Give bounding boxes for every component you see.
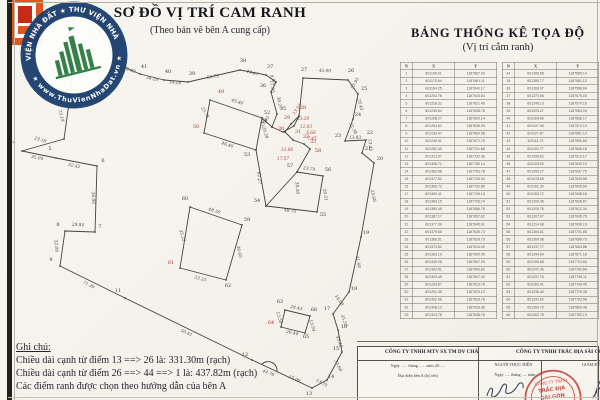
coord-row: 7601258.271187620.14: [400, 115, 497, 123]
coord-row: 65601260.701187800.48: [502, 304, 599, 312]
coordinate-table-left: NXY1601145.611187667.092601170.641187661…: [400, 62, 497, 336]
coord-row: 49601161.301187605.84: [502, 183, 599, 191]
svg-text:36: 36: [260, 83, 266, 89]
svg-text:50: 50: [193, 124, 199, 130]
svg-text:41: 41: [141, 64, 147, 70]
svg-text:38.38: 38.38: [293, 182, 299, 195]
svg-text:5: 5: [48, 146, 51, 152]
coordinate-table: NXY1601145.611187667.092601170.641187661…: [400, 62, 497, 319]
svg-text:7.45: 7.45: [307, 137, 317, 142]
page-title: SƠ ĐỒ VỊ TRÍ CAM RANH: [95, 5, 325, 22]
svg-text:26: 26: [348, 68, 354, 74]
signature-top-rule: [357, 341, 598, 342]
svg-text:38: 38: [240, 58, 246, 64]
svg-text:49: 49: [218, 89, 224, 95]
coord-row: 64601232.621187793.56: [502, 296, 599, 304]
coord-row: 23601366.511187628.75: [400, 236, 497, 244]
svg-text:5.66: 5.66: [306, 131, 316, 136]
coord-row: 40601169.891187568.17: [502, 115, 599, 123]
coord-row: 29601293.871187613.76: [400, 281, 497, 289]
svg-text:62: 62: [225, 283, 231, 289]
coord-row: 16601369.721187732.86: [400, 183, 497, 191]
coord-row: 36601268.971187588.84: [502, 85, 599, 93]
svg-text:23.78: 23.78: [199, 105, 210, 119]
coord-row: 63601236.441187776.38: [502, 289, 599, 297]
coord-row: 50601153.721187638.16: [502, 191, 599, 199]
notes-block: Ghi chú: Chiều dài cạnh từ điểm 13 ==> 2…: [16, 341, 326, 393]
svg-text:36.06: 36.06: [90, 192, 96, 205]
coord-row: 30601291.451187623.12: [400, 289, 497, 297]
coord-row: 46601103.091187630.13: [502, 160, 599, 168]
svg-text:14.29: 14.29: [169, 81, 182, 87]
coord-row: 60601147.361187700.84: [502, 266, 599, 274]
coord-row: 66601262.781187782.13: [502, 311, 599, 319]
coord-row: 57601237.771187663.88: [502, 243, 599, 251]
coord-row: 59601195.681187714.65: [502, 258, 599, 266]
coord-row: 26601349.281187597.29: [400, 258, 497, 266]
svg-text:56: 56: [325, 167, 331, 173]
scan-edge-right: [597, 0, 598, 400]
svg-text:17.57: 17.57: [277, 157, 290, 162]
coordinate-table-right: NXY34601306.581187585.1435601280.7711875…: [502, 62, 599, 336]
coord-table-title: BẢNG THỐNG KÊ TỌA ĐỘ: [398, 26, 598, 41]
svg-text:20: 20: [377, 156, 383, 162]
coord-row: 15601377.521187743.34: [400, 175, 497, 183]
svg-text:12.93: 12.93: [300, 125, 313, 130]
svg-text:27: 27: [301, 67, 307, 73]
svg-text:30.27: 30.27: [275, 96, 282, 109]
coord-row: 43601111.721187590.84: [502, 138, 599, 146]
coord-row: 13601346.711187760.14: [400, 160, 497, 168]
coord-row: 14601369.581187753.78: [400, 168, 497, 176]
svg-text:59: 59: [244, 217, 250, 223]
svg-text:53.73: 53.73: [206, 74, 219, 81]
svg-text:37: 37: [267, 64, 273, 70]
svg-text:29.31: 29.31: [321, 187, 328, 201]
svg-text:6: 6: [101, 158, 104, 164]
svg-text:65: 65: [303, 334, 309, 340]
scan-edge-bottom: [8, 397, 600, 398]
svg-text:36.65: 36.65: [235, 245, 243, 258]
svg-text:17: 17: [324, 306, 330, 312]
company-seal: CÔNG TY TNHH TRẮC ĐỊA SÀI GÒN: [506, 355, 600, 400]
coord-row: 55601264.811187701.85: [502, 228, 599, 236]
svg-text:44.47: 44.47: [245, 69, 259, 78]
party-a-company: CÔNG TY TNHH MTV SX TM DV CHÂU SÁO VIÊN: [385, 349, 451, 355]
coord-row: 17601363.411187726.13: [400, 191, 497, 199]
scan-edge-left-thin: [14, 0, 15, 400]
coord-row: 21601377.391187645.91: [400, 221, 497, 229]
svg-text:28.45: 28.45: [355, 97, 363, 111]
svg-text:54: 54: [254, 198, 260, 204]
svg-text:60: 60: [182, 196, 188, 202]
party-a-header: CÔNG TY TNHH MTV SX TM DV CHÂU SÁO VIÊN: [358, 347, 478, 361]
svg-text:14: 14: [328, 374, 334, 380]
svg-text:57: 57: [287, 163, 293, 169]
svg-text:45.40: 45.40: [230, 98, 244, 107]
svg-text:45.90: 45.90: [318, 69, 332, 74]
svg-text:63: 63: [277, 299, 283, 305]
party-a-body: Ngày ...... tháng ...... năm 20...... Đạ…: [358, 361, 478, 400]
svg-text:23: 23: [335, 133, 341, 139]
svg-text:53.95: 53.95: [350, 77, 361, 90]
svg-text:11.95: 11.95: [268, 80, 275, 93]
coord-row: 2601170.641187661.11: [400, 77, 497, 85]
svg-text:19: 19: [363, 230, 369, 236]
coord-row: 1601145.611187667.09: [400, 70, 497, 78]
coord-row: 56601269.981187668.73: [502, 236, 599, 244]
svg-text:13.58: 13.58: [274, 311, 283, 324]
svg-text:23.74: 23.74: [302, 166, 316, 173]
svg-text:52: 52: [264, 110, 270, 116]
coord-row: 39601203.271187563.04: [502, 108, 599, 116]
svg-text:64: 64: [268, 320, 274, 326]
svg-text:33.33: 33.33: [194, 276, 207, 284]
note-line-2: Chiều dài cạnh từ điểm 26 ==> 44 ==> 1 l…: [16, 367, 326, 380]
svg-text:30: 30: [278, 126, 284, 132]
svg-text:9: 9: [49, 257, 52, 263]
svg-text:61: 61: [168, 260, 174, 266]
svg-text:66: 66: [311, 307, 317, 313]
svg-text:23.68: 23.68: [369, 188, 377, 202]
svg-text:32.38: 32.38: [347, 122, 357, 135]
coord-table-subtitle: (Vị trí cắm ranh): [398, 42, 598, 53]
coord-row: 22601379.661187635.73: [400, 228, 497, 236]
coord-row: 24601373.821187616.00: [400, 243, 497, 251]
signature-block: CÔNG TY TNHH MTV SX TM DV CHÂU SÁO VIÊN …: [357, 346, 599, 400]
svg-text:39: 39: [189, 71, 195, 77]
page-subtitle: (Theo bản vẽ bên A cung cấp): [95, 25, 325, 36]
scan-edge-top: [8, 2, 600, 3]
coord-row: 47601093.271187637.75: [502, 168, 599, 176]
svg-text:12.86: 12.86: [281, 148, 294, 153]
coord-row: 5601218.321187621.46: [400, 100, 497, 108]
svg-text:24: 24: [355, 112, 361, 118]
notes-heading: Ghi chú:: [16, 341, 326, 354]
coord-row: 45601096.621187619.17: [502, 153, 599, 161]
coordinate-table: NXY34601306.581187585.1435601280.7711875…: [502, 62, 599, 319]
party-b-company: CÔNG TY TNHH TRẮC ĐỊA SÀI GÒN: [516, 349, 600, 355]
coord-row: 35601280.771187581.12: [502, 77, 599, 85]
coord-row: 18601369.151187706.74: [400, 198, 497, 206]
coord-row: 11601282.401187701.68: [400, 145, 497, 153]
svg-text:18: 18: [351, 286, 357, 292]
title-block: SƠ ĐỒ VỊ TRÍ CAM RANH (Theo bản vẽ bên A…: [95, 5, 325, 36]
svg-text:32.42: 32.42: [68, 163, 81, 170]
svg-text:34.29: 34.29: [146, 76, 159, 84]
svg-text:62.27: 62.27: [255, 172, 261, 185]
coord-row: 58601244.841187671.18: [502, 251, 599, 259]
svg-text:48.30: 48.30: [207, 207, 221, 216]
coord-row: 38601246.131187570.15: [502, 100, 599, 108]
coord-row: 62601182.411187749.45: [502, 281, 599, 289]
coord-row: 8601253.621187636.09: [400, 123, 497, 131]
coord-row: 10601246.911187671.79: [400, 138, 497, 146]
coord-row: 42601127.871187581.13: [502, 130, 599, 138]
svg-text:28.38: 28.38: [260, 125, 269, 139]
coord-table-heading: BẢNG THỐNG KÊ TỌA ĐỘ (Vị trí cắm ranh): [398, 26, 598, 53]
coord-row: 4601202.761187633.84: [400, 92, 497, 100]
svg-text:23.29: 23.29: [296, 117, 310, 122]
svg-text:8: 8: [56, 222, 59, 228]
coord-row: 3601184.251187640.17: [400, 85, 497, 93]
svg-text:25: 25: [361, 86, 367, 92]
coord-row: 34601306.581187585.14: [502, 70, 599, 78]
coord-row: 25601363.101187609.45: [400, 251, 497, 259]
coord-row: 53601207.071187645.75: [502, 213, 599, 221]
coord-row: 6601239.641187608.78: [400, 108, 497, 116]
coord-row: 48601078.691187649.88: [502, 175, 599, 183]
coord-row: 51601209.451187628.87: [502, 198, 599, 206]
svg-text:19.08: 19.08: [333, 294, 344, 307]
coord-row: 31601302.661187628.76: [400, 296, 497, 304]
svg-text:40: 40: [165, 69, 171, 75]
party-a-box: CÔNG TY TNHH MTV SX TM DV CHÂU SÁO VIÊN …: [358, 347, 479, 400]
coord-row: 32601308.131187633.36: [400, 304, 497, 312]
svg-text:13.93: 13.93: [349, 136, 362, 141]
svg-text:29.84: 29.84: [71, 223, 85, 228]
svg-text:23.18: 23.18: [33, 136, 47, 145]
coord-row: 52601215.761187612.34: [502, 206, 599, 214]
coord-row: 54601214.981187696.13: [502, 221, 599, 229]
coord-row: 44601102.771187606.18: [502, 145, 599, 153]
note-line-1: Chiều dài cạnh từ điểm 13 ==> 26 là: 331…: [16, 354, 326, 367]
party-a-role: Đại diện bên A (ký tên): [388, 373, 448, 378]
svg-text:48.70: 48.70: [283, 208, 297, 215]
svg-text:35.94: 35.94: [31, 155, 44, 162]
svg-text:7: 7: [98, 224, 101, 230]
coord-row: 27601302.511187590.82: [400, 266, 497, 274]
coord-row: 9601233.471187664.58: [400, 130, 497, 138]
coord-row: 20601387.171187657.82: [400, 213, 497, 221]
svg-text:22: 22: [367, 130, 373, 136]
coord-row: 28601303.491187607.42: [400, 274, 497, 282]
svg-text:13.94: 13.94: [307, 319, 316, 332]
coord-row: 19601380.451187686.78: [400, 206, 497, 214]
svg-text:35.22: 35.22: [177, 229, 186, 242]
svg-text:53: 53: [244, 152, 250, 158]
coord-row: 61601137.761187736.11: [502, 274, 599, 282]
coord-row: 37601273.561187575.03: [502, 92, 599, 100]
coord-row: 12601313.071187732.36: [400, 153, 497, 161]
svg-text:32.08: 32.08: [52, 240, 58, 253]
scanned-survey-document: 4445434241403938373635342829303132335827…: [0, 0, 600, 400]
coord-row: 33601313.781187638.76: [400, 311, 497, 319]
scan-edge-left: [7, 0, 12, 400]
party-a-date-line: Ngày ...... tháng ...... năm 20......: [388, 363, 448, 368]
svg-text:29: 29: [284, 115, 290, 121]
svg-text:55: 55: [320, 212, 326, 218]
coord-row: 41601147.961187574.13: [502, 123, 599, 131]
svg-text:58: 58: [315, 148, 321, 154]
note-line-3: Các điểm ranh được chọn theo hướng dẫn c…: [16, 380, 326, 393]
svg-text:11: 11: [115, 288, 121, 294]
